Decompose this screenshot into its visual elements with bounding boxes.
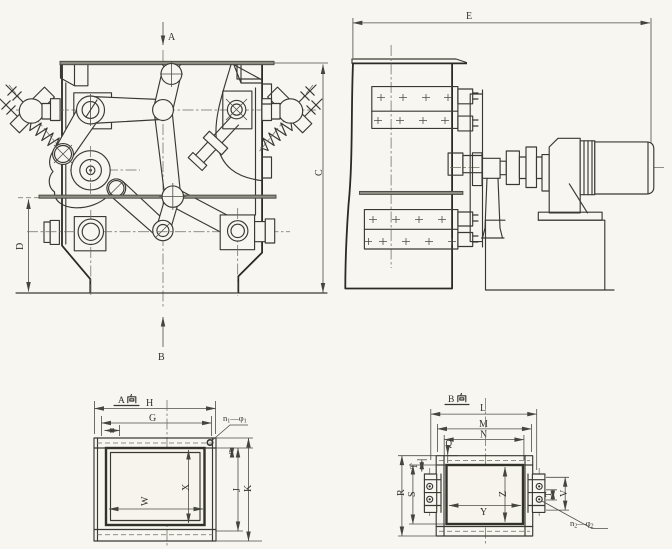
- svg-text:D: D: [15, 243, 26, 250]
- svg-text:m: m: [228, 449, 234, 454]
- svg-text:X: X: [181, 483, 192, 491]
- svg-text:A: A: [168, 32, 176, 43]
- svg-text:n2—φ2: n2—φ2: [570, 518, 594, 530]
- svg-text:S: S: [407, 491, 418, 497]
- svg-text:Q: Q: [446, 439, 453, 449]
- svg-text:A: A: [118, 396, 125, 406]
- svg-text:n1—φ1: n1—φ1: [223, 413, 247, 425]
- svg-text:K: K: [243, 484, 254, 492]
- svg-text:B: B: [448, 395, 454, 405]
- svg-text:M: M: [479, 419, 488, 430]
- svg-text:Z: Z: [498, 491, 509, 497]
- svg-text:G: G: [149, 413, 156, 424]
- svg-text:H: H: [146, 398, 153, 409]
- svg-text:R: R: [396, 489, 407, 496]
- svg-text:C: C: [314, 169, 325, 176]
- svg-text:T: T: [543, 491, 553, 497]
- svg-text:Y: Y: [480, 507, 487, 518]
- svg-text:B: B: [158, 352, 165, 363]
- svg-text:J: J: [232, 488, 243, 492]
- svg-text:V: V: [559, 489, 570, 497]
- svg-text:N: N: [480, 430, 487, 441]
- svg-text:T: T: [409, 463, 419, 469]
- svg-text:W: W: [140, 496, 151, 506]
- svg-text:E: E: [466, 11, 472, 22]
